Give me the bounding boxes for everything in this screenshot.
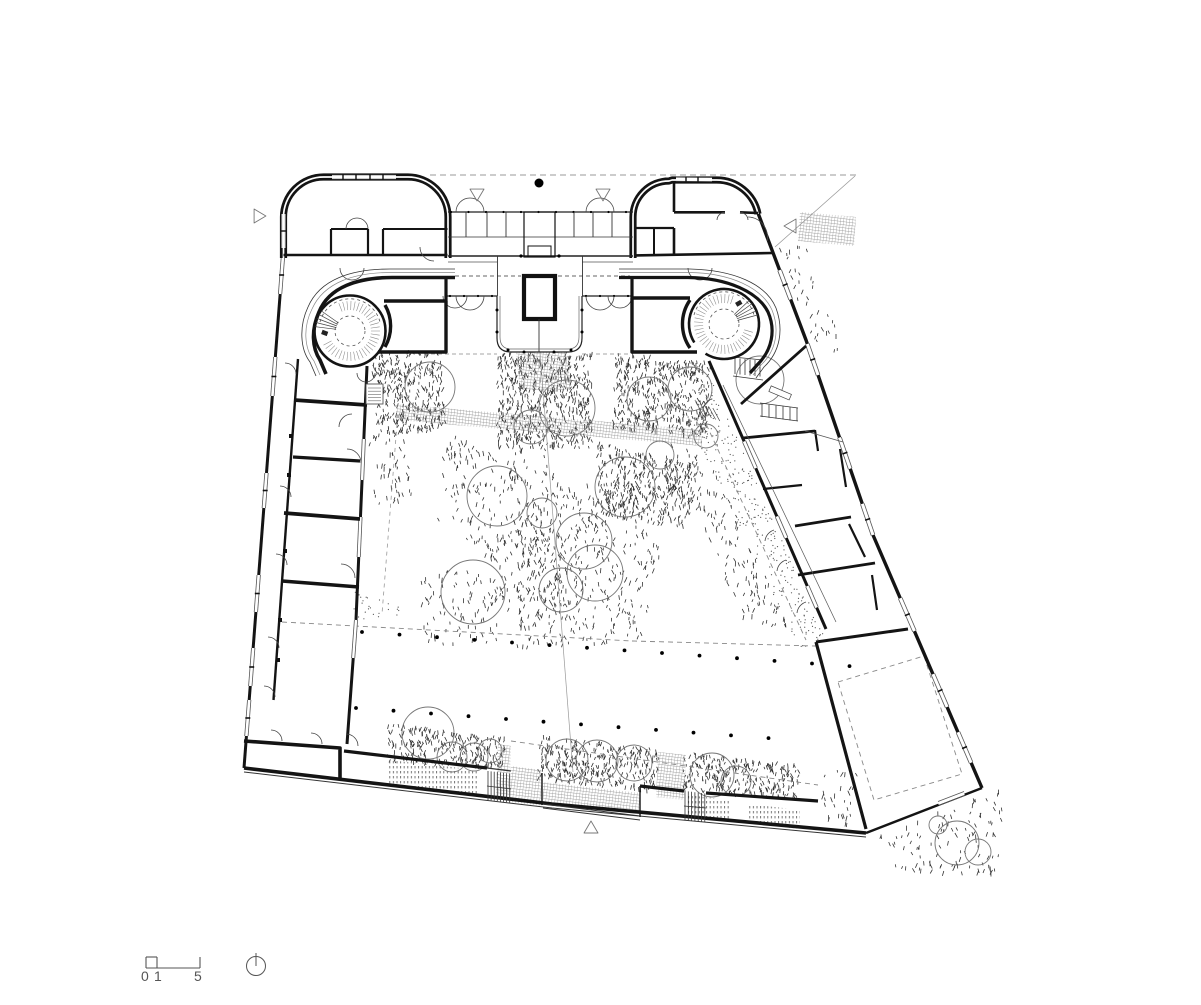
svg-text:1: 1 (154, 968, 162, 984)
svg-text:0: 0 (141, 968, 149, 984)
svg-text:5: 5 (194, 968, 202, 984)
